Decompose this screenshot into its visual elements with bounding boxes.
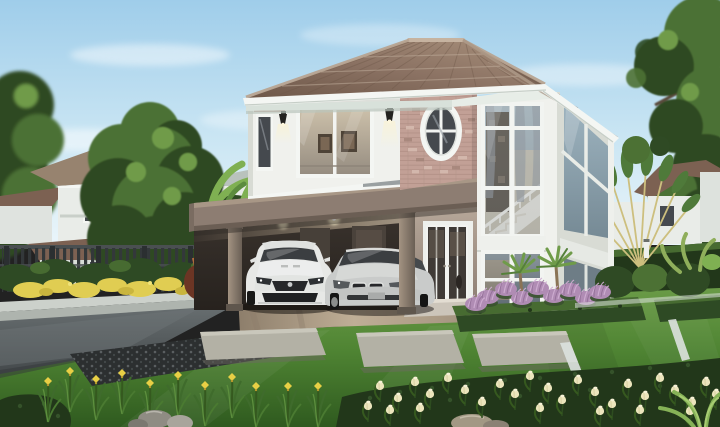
interior-vase xyxy=(456,275,462,289)
bay-mid-band xyxy=(477,236,548,252)
sliding-glass-door xyxy=(296,106,374,178)
carport-column-middle xyxy=(397,208,416,314)
narrow-window xyxy=(256,114,273,171)
rendering-canvas: Daytime 3D rendering of a modern two-sto… xyxy=(0,0,720,427)
garden-bollard-light xyxy=(644,239,650,258)
carport-column-left xyxy=(226,224,243,311)
architectural-rendering: Daytime 3D rendering of a modern two-sto… xyxy=(0,0,720,427)
